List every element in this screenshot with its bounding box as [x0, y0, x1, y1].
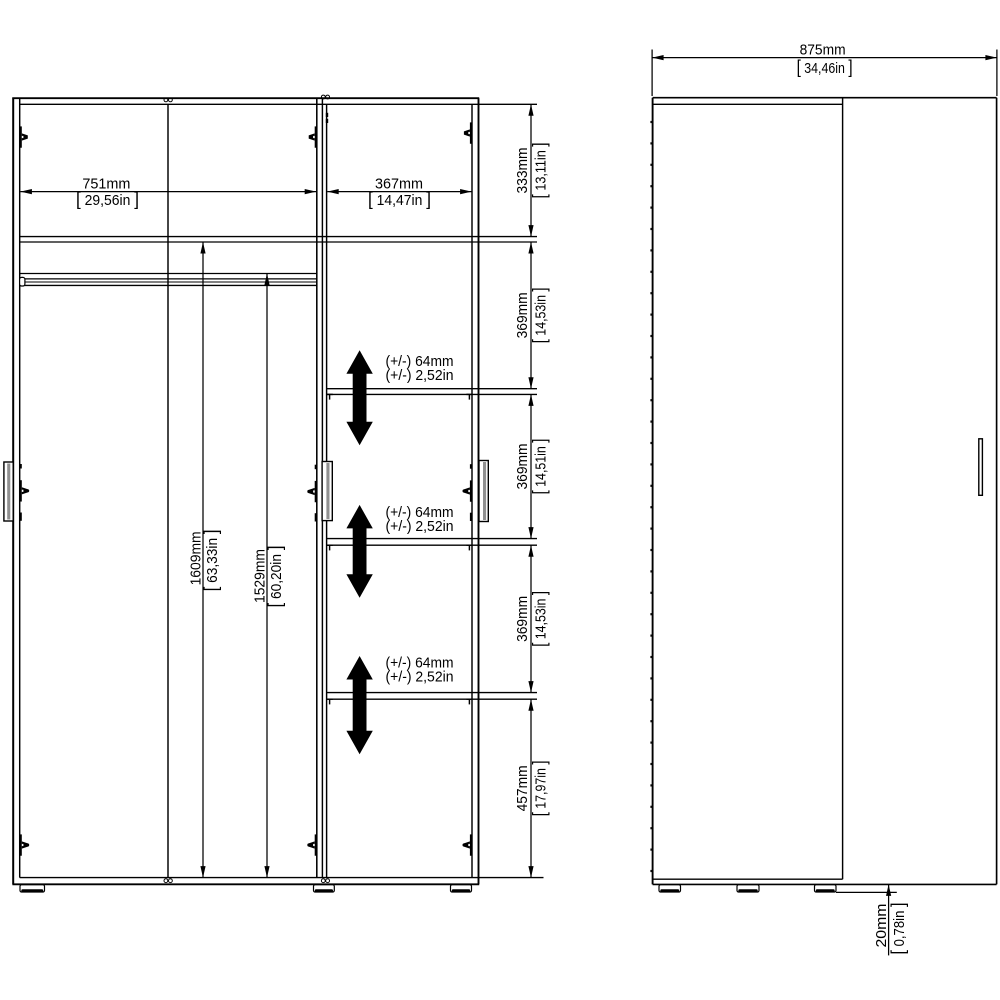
svg-text:20mm: 20mm [874, 904, 890, 948]
svg-text:369mm: 369mm [515, 596, 531, 642]
svg-text:333mm: 333mm [515, 147, 531, 193]
svg-text:457mm: 457mm [515, 765, 531, 811]
svg-text:(+/-) 2,52in: (+/-) 2,52in [386, 368, 454, 384]
svg-text:1529mm: 1529mm [252, 549, 268, 603]
svg-text:1609mm: 1609mm [188, 531, 204, 585]
svg-text:367mm: 367mm [375, 177, 423, 193]
svg-text:369mm: 369mm [515, 444, 531, 490]
svg-text:875mm: 875mm [800, 43, 846, 59]
svg-text:(+/-) 2,52in: (+/-) 2,52in [386, 670, 454, 686]
svg-text:(+/-) 2,52in: (+/-) 2,52in [386, 519, 454, 535]
svg-text:751mm: 751mm [82, 177, 130, 193]
svg-text:369mm: 369mm [515, 292, 531, 338]
